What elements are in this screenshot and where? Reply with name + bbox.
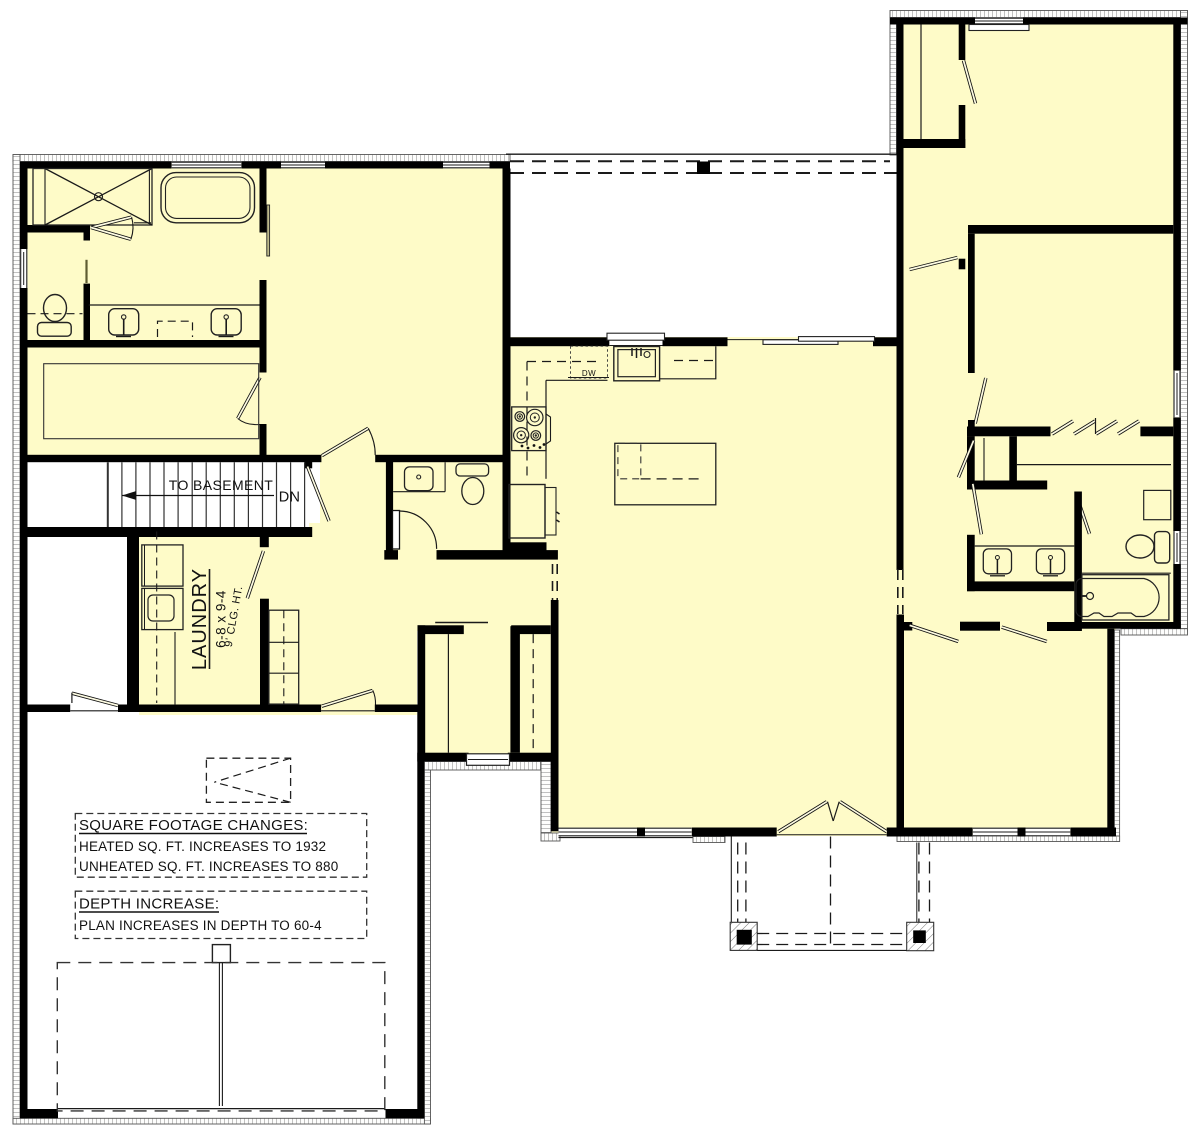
svg-text:PLAN INCREASES IN DEPTH TO 60-: PLAN INCREASES IN DEPTH TO 60-4 <box>79 918 322 933</box>
svg-text:UNHEATED SQ. FT. INCREASES TO: UNHEATED SQ. FT. INCREASES TO 880 <box>79 859 338 874</box>
svg-text:DN: DN <box>279 490 301 506</box>
svg-text:DW: DW <box>582 369 596 378</box>
svg-text:DEPTH INCREASE:: DEPTH INCREASE: <box>79 896 219 913</box>
svg-text:TO BASEMENT: TO BASEMENT <box>169 477 274 493</box>
svg-text:LAUNDRY: LAUNDRY <box>189 568 211 670</box>
svg-text:HEATED SQ. FT. INCREASES TO 19: HEATED SQ. FT. INCREASES TO 1932 <box>79 839 326 854</box>
svg-text:SQUARE FOOTAGE CHANGES:: SQUARE FOOTAGE CHANGES: <box>79 817 308 834</box>
